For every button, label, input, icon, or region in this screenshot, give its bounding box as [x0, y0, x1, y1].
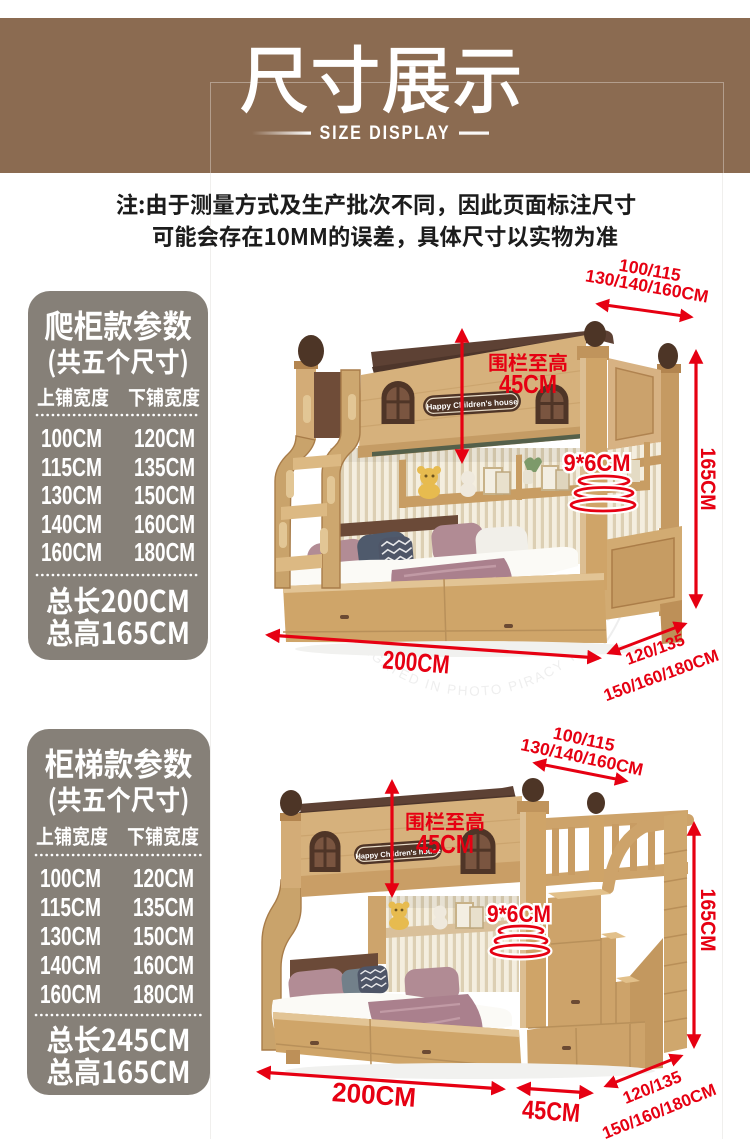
svg-text:100CM: 100CM: [40, 865, 101, 893]
svg-text:180CM: 180CM: [133, 981, 194, 1009]
svg-text:120CM: 120CM: [134, 425, 195, 453]
svg-text:45CM: 45CM: [416, 829, 474, 859]
svg-text:130CM: 130CM: [41, 482, 102, 510]
svg-text:165CM: 165CM: [696, 889, 719, 952]
svg-text:160CM: 160CM: [41, 539, 102, 567]
svg-text:45CM: 45CM: [499, 369, 557, 399]
svg-text:140CM: 140CM: [40, 952, 101, 980]
svg-text:150CM: 150CM: [134, 482, 195, 510]
svg-text:120CM: 120CM: [133, 865, 194, 893]
svg-text:160CM: 160CM: [133, 952, 194, 980]
svg-text:115CM: 115CM: [41, 454, 102, 482]
svg-text:150CM: 150CM: [133, 923, 194, 951]
svg-text:130CM: 130CM: [40, 923, 101, 951]
svg-text:200CM: 200CM: [382, 644, 451, 679]
svg-text:135CM: 135CM: [134, 454, 195, 482]
svg-text:45CM: 45CM: [521, 1094, 581, 1128]
svg-text:100CM: 100CM: [41, 425, 102, 453]
svg-text:SIZE DISPLAY: SIZE DISPLAY: [320, 123, 451, 144]
svg-text:140CM: 140CM: [41, 511, 102, 539]
svg-text:200CM: 200CM: [331, 1077, 417, 1113]
svg-text:160CM: 160CM: [40, 981, 101, 1009]
svg-text:160CM: 160CM: [134, 511, 195, 539]
svg-text:115CM: 115CM: [40, 894, 101, 922]
svg-text:180CM: 180CM: [134, 539, 195, 567]
svg-text:165CM: 165CM: [696, 448, 719, 511]
svg-text:135CM: 135CM: [133, 894, 194, 922]
